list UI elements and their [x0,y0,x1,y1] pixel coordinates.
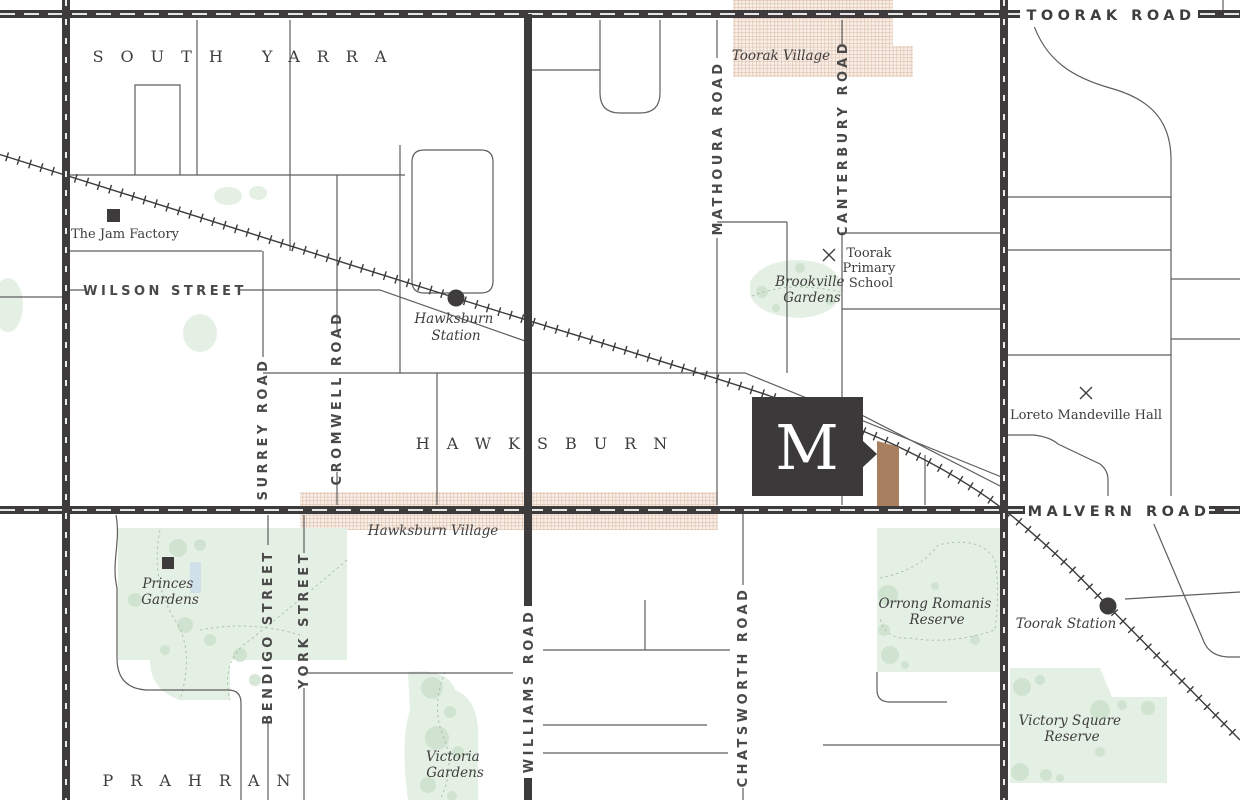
small-park [183,314,217,352]
label-toorak-primary-school: Toorak Primary School [843,246,900,291]
label-canterbury-road: CANTERBURY ROAD [836,40,851,236]
small-park [249,186,267,200]
label-victoria-gardens: Victoria Gardens [426,749,484,781]
small-park [214,187,242,205]
label-mathoura-road: MATHOURA ROAD [711,60,726,235]
label-cromwell-road: CROMWELL ROAD [330,311,345,486]
location-map: SOUTH YARRA HAWKSBURN PRAHRAN TOORAK ROA… [0,0,1240,800]
toorak-station-dot [1100,598,1117,615]
label-hawksburn-village: Hawksburn Village [367,523,498,539]
label-hawksburn: HAWKSBURN [416,434,685,453]
site-parcel [877,441,899,506]
hawksburn-station-dot [448,290,465,307]
jam-factory-marker [107,209,120,222]
label-bendigo-street: BENDIGO STREET [261,549,276,724]
label-toorak-village: Toorak Village [732,48,830,64]
label-williams-road: WILLIAMS ROAD [522,609,537,774]
label-surrey-road: SURREY ROAD [256,358,271,501]
label-chatsworth-road: CHATSWORTH ROAD [736,587,751,788]
label-brookville-gardens: Brookville Gardens [774,274,849,306]
label-prahran: PRAHRAN [103,771,308,790]
label-loreto-mandeville-hall: Loreto Mandeville Hall [1010,408,1162,423]
label-princes-gardens: Princes Gardens [141,576,199,608]
label-malvern-road: MALVERN ROAD [1028,504,1211,520]
label-south-yarra: SOUTH YARRA [93,47,404,66]
label-toorak-station: Toorak Station [1016,616,1116,632]
label-jam-factory: The Jam Factory [71,227,180,242]
m-logo-letter: M [775,411,838,484]
label-york-street: YORK STREET [297,551,312,690]
label-wilson-street: WILSON STREET [83,284,247,299]
m-logo: M [752,397,877,496]
princes-gardens-marker [162,557,174,569]
label-toorak-road: TOORAK ROAD [1026,8,1195,24]
